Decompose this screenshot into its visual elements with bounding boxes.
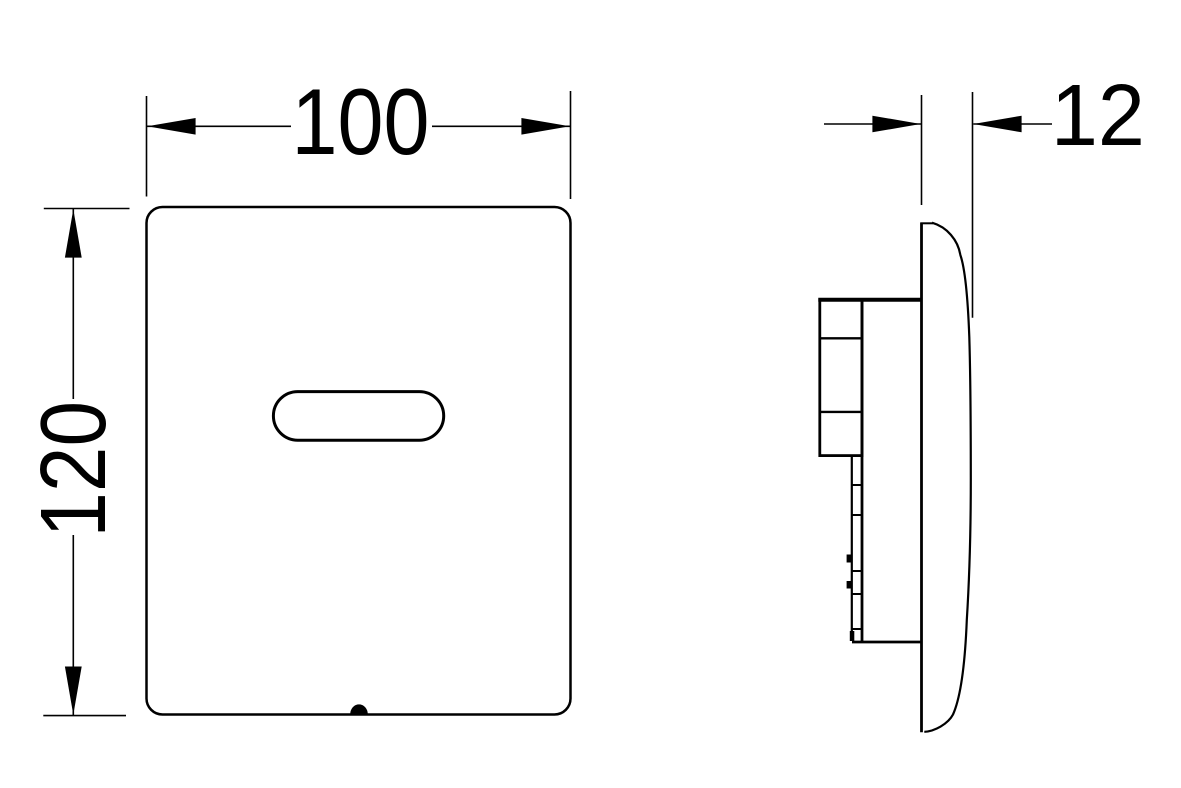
svg-text:120: 120 [21, 401, 125, 538]
svg-text:12: 12 [1051, 67, 1145, 164]
svg-text:100: 100 [292, 69, 430, 174]
